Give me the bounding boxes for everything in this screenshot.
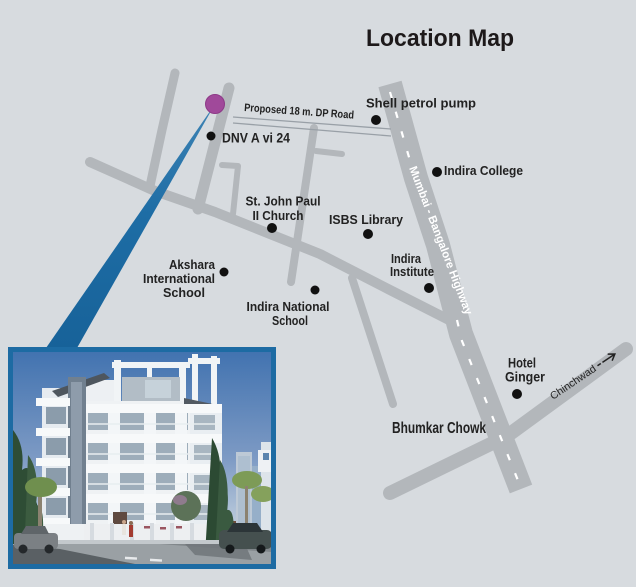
svg-text:Ginger: Ginger [505,369,545,385]
svg-text:International: International [143,271,215,286]
svg-text:Akshara: Akshara [169,257,216,272]
svg-text:Location Map: Location Map [366,25,514,52]
svg-text:II Church: II Church [253,208,304,223]
svg-text:Bhumkar Chowk: Bhumkar Chowk [392,420,486,437]
svg-text:School: School [163,285,205,300]
svg-text:School: School [272,313,308,328]
svg-text:Indira College: Indira College [444,163,523,178]
svg-text:St. John Paul: St. John Paul [246,194,321,209]
svg-text:Shell petrol pump: Shell petrol pump [366,96,476,111]
svg-text:DNV A vi 24: DNV A vi 24 [222,130,290,146]
svg-text:Indira National: Indira National [247,299,330,314]
svg-text:Institute: Institute [390,264,434,279]
svg-text:ISBS Library: ISBS Library [329,212,404,227]
